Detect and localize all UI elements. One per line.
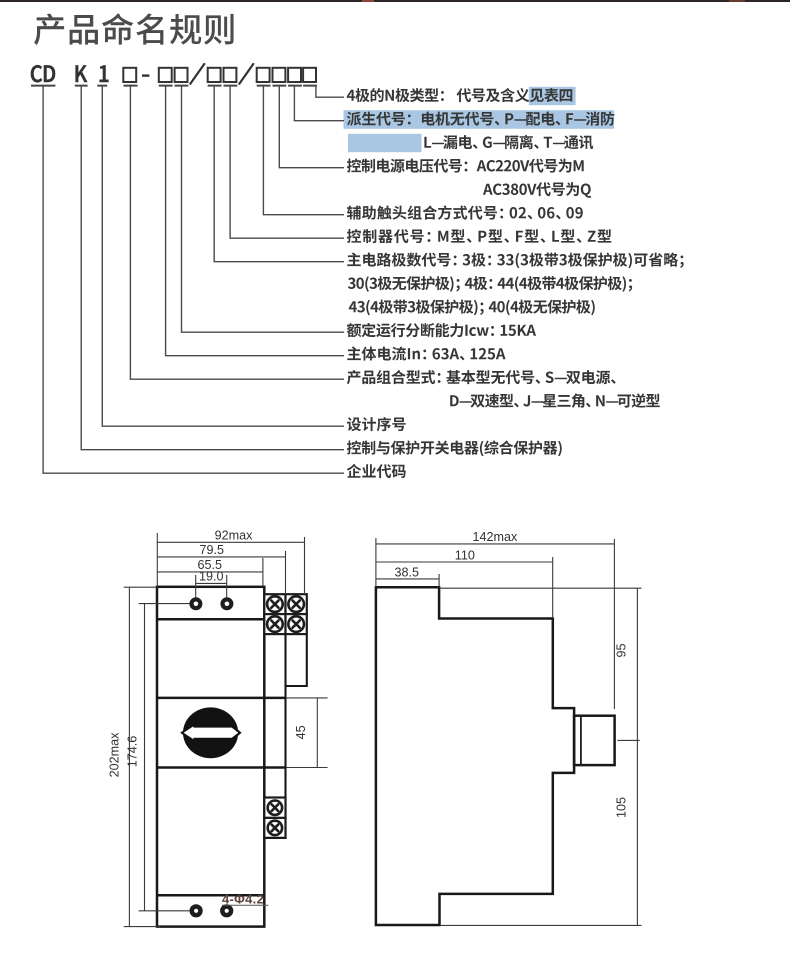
svg-text:105: 105 [614, 797, 628, 818]
svg-text:95: 95 [614, 643, 628, 657]
svg-text:142max: 142max [472, 530, 518, 544]
svg-text:110: 110 [455, 548, 475, 562]
svg-text:174.6: 174.6 [126, 736, 140, 768]
svg-text:38.5: 38.5 [395, 565, 420, 579]
svg-text:45: 45 [294, 725, 308, 739]
svg-text:202max: 202max [108, 732, 122, 778]
svg-text:92max: 92max [215, 529, 254, 543]
svg-text:79.5: 79.5 [200, 543, 225, 557]
svg-text:19.0: 19.0 [199, 569, 224, 583]
svg-text:4-Φ4.2: 4-Φ4.2 [222, 892, 264, 907]
